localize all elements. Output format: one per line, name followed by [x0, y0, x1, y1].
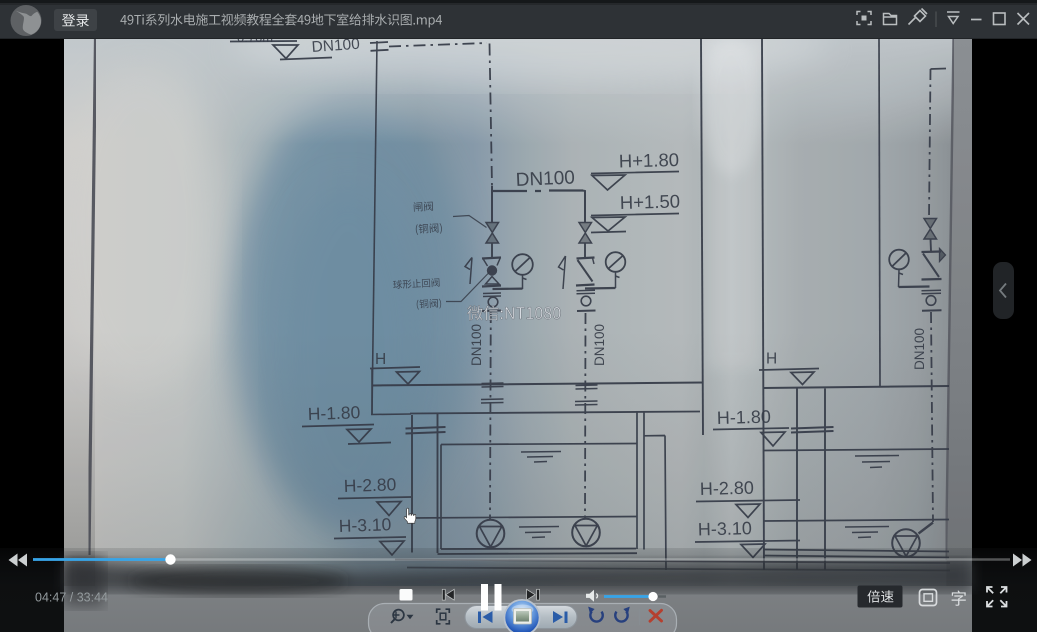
svg-text:04:47 / 33:44: 04:47 / 33:44	[35, 591, 108, 605]
